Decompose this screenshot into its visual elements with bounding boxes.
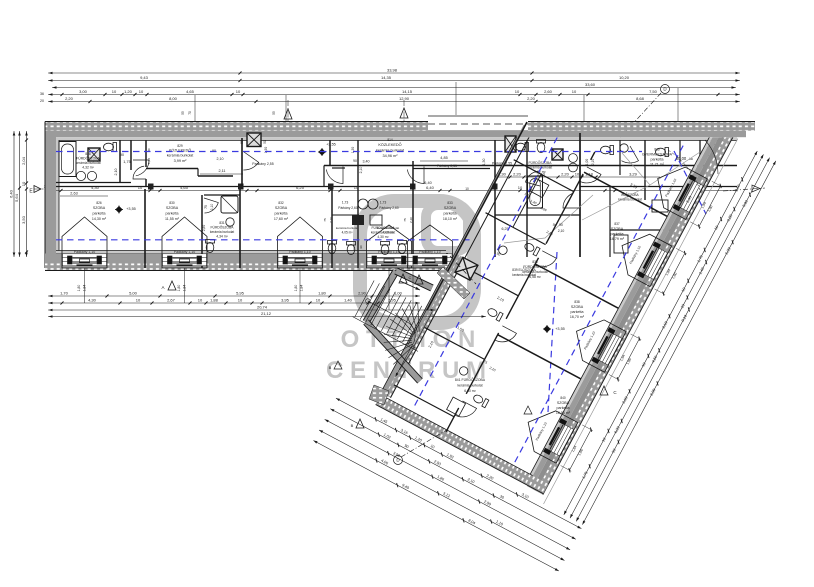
- svg-text:1,80: 1,80: [77, 285, 81, 292]
- svg-text:3,29: 3,29: [629, 171, 638, 176]
- svg-text:kerámia burkolat: kerámia burkolat: [512, 273, 536, 277]
- svg-text:GYERMEKSZOBA: GYERMEKSZOBA: [642, 153, 673, 157]
- svg-text:Padkány 1,10: Padkány 1,10: [289, 250, 310, 254]
- svg-text:1,73: 1,73: [342, 201, 349, 205]
- svg-text:16,56 m²: 16,56 m²: [556, 411, 571, 415]
- svg-text:2,10: 2,10: [359, 167, 363, 174]
- svg-text:17,60 m²: 17,60 m²: [274, 217, 289, 221]
- svg-text:10: 10: [21, 181, 26, 186]
- svg-text:+3,55: +3,55: [326, 143, 336, 147]
- svg-text:parketta: parketta: [93, 212, 106, 216]
- svg-text:16,79 m²: 16,79 m²: [610, 237, 625, 241]
- svg-text:839 ELŐSZOBA: 839 ELŐSZOBA: [512, 267, 536, 272]
- svg-text:2,10: 2,10: [409, 217, 413, 223]
- svg-text:8,68: 8,68: [636, 96, 645, 101]
- svg-text:814: 814: [387, 138, 393, 142]
- svg-text:SZOBA: SZOBA: [557, 401, 570, 405]
- svg-text:kerámia burkolat: kerámia burkolat: [377, 226, 399, 230]
- svg-text:2,95: 2,95: [388, 297, 397, 302]
- svg-text:3,40: 3,40: [363, 160, 370, 164]
- svg-text:36: 36: [40, 92, 44, 96]
- svg-text:55: 55: [272, 111, 276, 115]
- svg-text:20: 20: [40, 99, 44, 103]
- svg-text:10,20: 10,20: [619, 75, 630, 80]
- svg-text:10: 10: [465, 187, 469, 191]
- svg-text:kerámia burkolat: kerámia burkolat: [75, 161, 100, 165]
- svg-text:3,95: 3,95: [281, 297, 290, 302]
- svg-text:10: 10: [236, 89, 241, 94]
- svg-text:parketta: parketta: [275, 212, 288, 216]
- svg-text:16,70 m²: 16,70 m²: [570, 315, 585, 319]
- svg-text:21,12: 21,12: [261, 311, 272, 316]
- svg-text:1,20: 1,20: [124, 89, 133, 94]
- svg-text:parketta: parketta: [611, 232, 624, 236]
- svg-text:1,80: 1,80: [318, 290, 327, 295]
- svg-text:8,00: 8,00: [169, 96, 178, 101]
- svg-text:3,50: 3,50: [21, 215, 26, 224]
- svg-text:826: 826: [96, 201, 102, 205]
- svg-text:parketta: parketta: [166, 212, 179, 216]
- svg-text:2,11: 2,11: [218, 169, 225, 173]
- svg-text:2,10: 2,10: [329, 217, 333, 223]
- svg-text:Párkány 2,60: Párkány 2,60: [338, 206, 358, 210]
- svg-text:841 FÜRDŐSZOBA: 841 FÜRDŐSZOBA: [455, 377, 486, 382]
- svg-text:832: 832: [278, 201, 284, 205]
- svg-text:1,44: 1,44: [147, 158, 151, 164]
- svg-text:90: 90: [353, 159, 357, 163]
- svg-text:10: 10: [198, 297, 203, 302]
- svg-text:75: 75: [403, 218, 407, 222]
- svg-text:11,71 m²: 11,71 m²: [650, 163, 665, 167]
- svg-text:FÜRDŐSZOBA: FÜRDŐSZOBA: [76, 156, 100, 161]
- svg-text:2,10: 2,10: [210, 204, 214, 211]
- svg-text:10: 10: [136, 297, 141, 302]
- svg-text:7,50: 7,50: [649, 89, 658, 94]
- svg-text:2,20: 2,20: [561, 171, 570, 176]
- svg-text:14,35: 14,35: [381, 75, 392, 80]
- svg-text:1,80: 1,80: [294, 285, 298, 292]
- svg-text:2,10: 2,10: [558, 229, 565, 233]
- svg-text:4,65: 4,65: [186, 89, 195, 94]
- svg-text:SZOBA: SZOBA: [444, 206, 457, 210]
- svg-text:10: 10: [515, 89, 520, 94]
- svg-text:837: 837: [614, 222, 620, 226]
- svg-text:parketta: parketta: [557, 406, 570, 410]
- svg-text:parketta: parketta: [651, 158, 664, 162]
- svg-text:Padkány 1,10: Padkány 1,10: [74, 250, 95, 254]
- svg-text:33,98: 33,98: [387, 67, 398, 72]
- svg-text:3,00: 3,00: [79, 89, 88, 94]
- svg-text:831: 831: [219, 221, 225, 225]
- svg-text:840: 840: [560, 396, 566, 400]
- svg-text:1,40: 1,40: [344, 297, 353, 302]
- svg-text:10: 10: [518, 185, 523, 190]
- svg-text:4,00 m²: 4,00 m²: [383, 231, 394, 235]
- svg-text:4,65: 4,65: [180, 185, 189, 190]
- svg-text:kerámia burkolat: kerámia burkolat: [336, 226, 358, 230]
- svg-text:10: 10: [238, 297, 243, 302]
- svg-text:1,80: 1,80: [177, 285, 181, 292]
- svg-text:4,85: 4,85: [440, 156, 447, 160]
- svg-text:Padkány 2,55: Padkány 2,55: [252, 162, 273, 166]
- svg-text:FÜRDŐSZOBA: FÜRDŐSZOBA: [529, 160, 553, 165]
- svg-text:75: 75: [204, 205, 208, 209]
- svg-text:4,34 m²: 4,34 m²: [216, 235, 228, 239]
- svg-text:B: B: [351, 423, 354, 428]
- svg-text:14,30 m²: 14,30 m²: [92, 217, 107, 221]
- svg-text:833: 833: [447, 201, 453, 205]
- svg-text:9,43: 9,43: [140, 75, 149, 80]
- svg-text:835: 835: [532, 260, 538, 264]
- svg-text:10: 10: [138, 185, 143, 190]
- svg-text:2,10: 2,10: [591, 159, 595, 166]
- svg-text:1,30: 1,30: [264, 147, 268, 154]
- svg-text:829: 829: [177, 144, 183, 148]
- svg-text:6,60 m²: 6,60 m²: [464, 389, 476, 393]
- svg-text:B: B: [329, 365, 332, 370]
- svg-text:5,95: 5,95: [236, 290, 245, 295]
- svg-text:Párkány 2,55: Párkány 2,55: [437, 164, 457, 168]
- svg-text:6,40: 6,40: [426, 185, 435, 190]
- svg-text:2,10: 2,10: [114, 169, 118, 176]
- svg-text:Padkány 1,10: Padkány 1,10: [174, 250, 195, 254]
- svg-text:SZOBA: SZOBA: [93, 206, 106, 210]
- svg-text:20,74: 20,74: [257, 304, 268, 309]
- svg-text:SZOBA: SZOBA: [275, 206, 288, 210]
- svg-text:6,25: 6,25: [296, 185, 305, 190]
- svg-text:10: 10: [112, 89, 117, 94]
- svg-text:1,00: 1,00: [394, 290, 403, 295]
- svg-text:838: 838: [574, 300, 580, 304]
- svg-text:2,60: 2,60: [544, 89, 553, 94]
- svg-text:kerámia burkolat: kerámia burkolat: [210, 230, 234, 234]
- svg-text:2,20: 2,20: [527, 96, 536, 101]
- svg-text:6,40: 6,40: [424, 181, 431, 185]
- svg-text:2,20: 2,20: [513, 171, 522, 176]
- svg-text:90: 90: [559, 223, 563, 227]
- svg-text:33,60: 33,60: [585, 82, 596, 87]
- svg-text:parketta: parketta: [444, 212, 457, 216]
- svg-text:6,40: 6,40: [8, 189, 13, 198]
- svg-text:KÖZLEKEDŐ: KÖZLEKEDŐ: [378, 142, 401, 147]
- svg-text:1,88: 1,88: [210, 297, 219, 302]
- svg-text:10: 10: [572, 89, 577, 94]
- svg-text:A: A: [161, 285, 164, 290]
- svg-text:4,30: 4,30: [88, 297, 97, 302]
- svg-text:34,96 m²: 34,96 m²: [383, 154, 399, 158]
- svg-text:1,70: 1,70: [60, 290, 69, 295]
- svg-text:SZOBA: SZOBA: [611, 227, 624, 231]
- svg-text:75: 75: [323, 218, 327, 222]
- svg-text:50: 50: [263, 140, 267, 144]
- svg-text:3,99 m²: 3,99 m²: [174, 159, 188, 163]
- svg-text:1,73: 1,73: [380, 201, 387, 205]
- svg-text:+3,55: +3,55: [126, 207, 136, 211]
- svg-text:4,30 m²: 4,30 m²: [377, 235, 389, 239]
- svg-text:830: 830: [169, 201, 175, 205]
- svg-text:1,30: 1,30: [351, 147, 355, 154]
- svg-text:12,90: 12,90: [399, 96, 410, 101]
- svg-text:SZOBA: SZOBA: [571, 305, 584, 309]
- svg-text:50: 50: [240, 140, 244, 144]
- svg-text:828: 828: [85, 152, 91, 156]
- svg-text:2,67: 2,67: [167, 297, 176, 302]
- svg-text:4,05 m²: 4,05 m²: [342, 231, 353, 235]
- svg-text:kerámia burkolat: kerámia burkolat: [167, 154, 194, 158]
- svg-text:Padkány 1,10: Padkány 1,10: [419, 250, 440, 254]
- svg-text:1,75: 1,75: [123, 160, 130, 164]
- svg-text:2,20: 2,20: [65, 96, 74, 101]
- svg-text:836: 836: [654, 148, 660, 152]
- svg-text:90: 90: [359, 245, 363, 249]
- svg-text:10: 10: [139, 89, 144, 94]
- svg-text:parketta: parketta: [571, 310, 584, 314]
- svg-text:10: 10: [316, 297, 321, 302]
- svg-text:14,15: 14,15: [402, 89, 413, 94]
- svg-text:FÜRDŐSZOBA: FÜRDŐSZOBA: [211, 225, 235, 230]
- svg-text:18,10 m²: 18,10 m²: [443, 217, 458, 221]
- svg-text:90: 90: [120, 153, 124, 157]
- svg-text:2,63: 2,63: [70, 192, 77, 196]
- svg-text:+3,55: +3,55: [555, 327, 565, 331]
- svg-text:kerámia burkolat: kerámia burkolat: [457, 384, 482, 388]
- svg-text:10: 10: [575, 171, 580, 176]
- svg-text:2,90: 2,90: [358, 290, 367, 295]
- svg-text:5,00: 5,00: [129, 290, 138, 295]
- svg-text:2,04: 2,04: [21, 156, 26, 165]
- svg-text:SZOBA: SZOBA: [166, 206, 179, 210]
- svg-text:1,30: 1,30: [482, 159, 486, 166]
- svg-text:1,00: 1,00: [585, 159, 589, 166]
- svg-text:70: 70: [188, 111, 192, 115]
- svg-text:55: 55: [181, 111, 185, 115]
- svg-text:4,32 m²: 4,32 m²: [82, 166, 94, 170]
- svg-text:2,10: 2,10: [217, 157, 224, 161]
- svg-text:C: C: [409, 275, 412, 280]
- svg-text:4,30: 4,30: [91, 185, 100, 190]
- svg-text:2,80: 2,80: [202, 225, 206, 232]
- svg-text:5,64: 5,64: [14, 193, 19, 202]
- svg-text:11,55 m²: 11,55 m²: [165, 217, 180, 221]
- svg-text:Párkány 2,60: Párkány 2,60: [379, 206, 399, 210]
